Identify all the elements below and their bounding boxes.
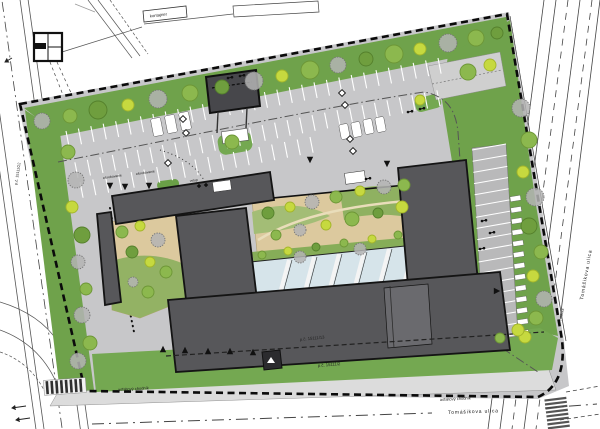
tree-icon [301,61,319,79]
tree-icon [521,218,537,234]
tree-icon [294,224,306,236]
tree-icon [116,226,128,238]
tree-icon [373,208,383,218]
ramp-slab-outline [233,1,319,17]
tree-icon [294,251,306,263]
tree-icon [276,70,288,82]
tree-icon [160,266,172,278]
crosswalk-stripe [548,425,570,429]
tree-icon [355,186,365,196]
tree-icon [142,286,154,298]
street-bottom-label: Tomášikova ulica [448,408,499,416]
site-plan-drawing: kontajner Tomášikova ulica k.ú. Nové Mes… [0,0,600,429]
tree-icon [145,257,155,267]
tree-icon [149,90,167,108]
tree-icon [284,247,292,255]
tree-icon [68,172,84,188]
tree-icon [83,336,97,350]
tree-icon [321,220,331,230]
sidewalk-label-right: asfaltový chodník [440,395,471,402]
tree-icon [460,64,476,80]
tree-icon [66,201,78,213]
tree-icon [536,291,552,307]
tree-icon [368,235,376,243]
tree-icon [151,233,165,247]
tree-icon [529,311,543,325]
tree-icon [512,324,524,336]
tree-icon [394,231,402,239]
street-right-label: Tomášikova ulica [579,249,594,300]
tree-icon [398,179,410,191]
tree-icon [126,246,138,258]
tree-icon [526,188,544,206]
tree-icon [61,145,75,159]
tree-icon [63,109,77,123]
tree-icon [330,57,346,73]
tree-icon [396,201,408,213]
tree-icon [122,99,134,111]
tree-icon [80,283,92,295]
tree-icon [285,202,295,212]
tree-icon [215,80,229,94]
tree-icon [415,95,425,105]
tree-icon [262,207,274,219]
tree-icon [225,135,239,149]
tree-icon [377,180,391,194]
crosswalk-stripe [545,401,567,406]
crosswalk-bottom-right [544,397,570,429]
parcel-road-label: p.č. 15111/22 [14,162,21,185]
tree-icon [245,72,263,90]
tree-icon [271,230,281,240]
crosswalk-stripe [546,409,568,414]
crosswalk-stripe [547,421,569,426]
top-street-details: kontajner [62,0,319,58]
tree-icon [491,27,503,39]
tree-icon [414,43,426,55]
crosswalk-stripe [544,397,566,402]
tree-icon [312,243,320,251]
tree-icon [517,166,529,178]
bottom-street: Tomášikova ulica [92,404,597,424]
tree-icon [527,270,539,282]
tree-icon [385,45,403,63]
crosswalk-stripe [547,417,569,422]
tree-icon [340,239,348,247]
entrance-box-south [262,350,282,370]
tree-icon [305,195,319,209]
traffic-arrow-icon [5,58,12,62]
tree-icon [74,227,90,243]
tree-icon [182,85,198,101]
tree-icon [354,243,366,255]
crosswalk-stripe [546,413,568,418]
tree-icon [135,221,145,231]
traffic-arrow-icon [16,418,30,420]
tree-icon [512,99,530,117]
tree-icon [74,307,90,323]
crosswalk-bottom-left [43,377,86,395]
traffic-arrow-icon [12,406,26,408]
tree-icon [70,353,86,369]
tree-icon [521,132,537,148]
tree-icon [345,212,359,226]
tree-icon [34,113,50,129]
tree-icon [468,30,484,46]
site-plan-page: kontajner Tomášikova ulica k.ú. Nové Mes… [0,0,600,429]
tree-icon [71,255,85,269]
tree-icon [128,277,138,287]
tree-icon [439,34,457,52]
tree-icon [359,52,373,66]
entrance-canopy [212,180,231,192]
tree-icon [495,333,505,343]
tree-icon [89,101,107,119]
tree-icon [330,191,342,203]
tree-icon [484,59,496,71]
tree-icon [534,245,548,259]
tree-icon [258,251,266,259]
